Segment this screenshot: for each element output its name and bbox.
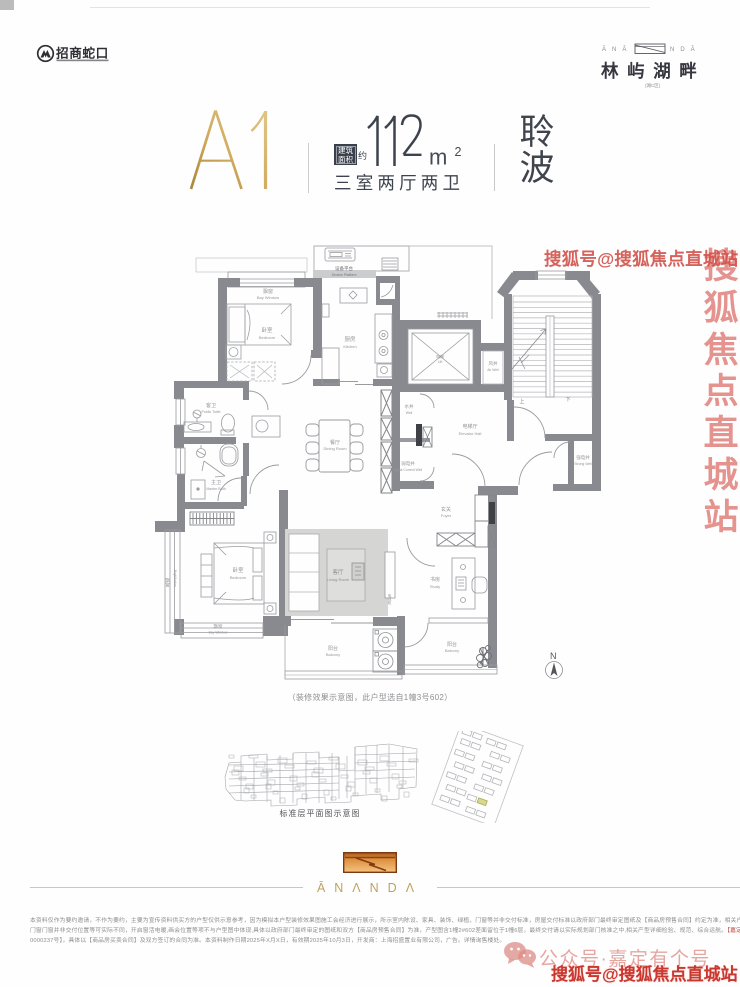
svg-text:Dining Room: Dining Room [323,446,347,451]
svg-text:卧室: 卧室 [232,566,244,574]
svg-text:Strong Well: Strong Well [574,462,592,466]
svg-text:电梯厅: 电梯厅 [462,423,477,430]
svg-text:厨房: 厨房 [344,335,356,343]
svg-text:设备平台: 设备平台 [335,265,353,272]
svg-text:Bedroom: Bedroom [230,575,247,580]
svg-text:N: N [550,651,557,661]
svg-text:强电井: 强电井 [576,454,590,461]
svg-text:Air Well: Air Well [487,368,499,372]
svg-text:Kitchen: Kitchen [343,344,356,349]
svg-text:Bedroom: Bedroom [259,335,276,340]
svg-text:Public Toilet: Public Toilet [201,410,220,414]
svg-text:Balcony: Balcony [445,648,459,653]
svg-text:飘窗: 飘窗 [263,288,273,295]
svg-text:Balcony: Balcony [326,652,340,657]
svg-text:弱电井: 弱电井 [401,460,415,467]
svg-text:Elevator Hall: Elevator Hall [459,431,482,436]
svg-text:风井: 风井 [489,360,498,367]
svg-text:Well: Well [406,411,413,415]
svg-text:餐厅: 餐厅 [330,439,340,446]
svg-text:BayWindow: BayWindow [173,570,177,588]
svg-text:卧室: 卧室 [261,326,273,334]
svg-text:Service Platform: Service Platform [332,273,357,277]
svg-text:Master Bath: Master Bath [206,487,225,491]
svg-text:Lift: Lift [438,360,443,364]
svg-text:飘窗: 飘窗 [165,578,171,589]
svg-text:书房: 书房 [430,576,440,583]
svg-text:客厅: 客厅 [332,568,344,576]
svg-text:Study: Study [430,584,440,589]
svg-text:电梯: 电梯 [436,353,444,359]
svg-text:水井: 水井 [405,403,414,410]
svg-text:Living Room: Living Room [327,577,350,582]
svg-text:玄关: 玄关 [441,506,451,513]
svg-text:Bay Window: Bay Window [257,295,279,300]
svg-text:Weak Current Well: Weak Current Well [394,468,423,472]
svg-text:阳台: 阳台 [447,641,457,648]
svg-text:飘窗: 飘窗 [214,623,223,630]
svg-text:阳台: 阳台 [328,645,338,652]
svg-text:主卫: 主卫 [211,479,221,486]
svg-text:电视柜: 电视柜 [387,593,392,605]
svg-text:Bay Window: Bay Window [209,631,228,635]
svg-text:客卫: 客卫 [206,402,216,409]
svg-text:下: 下 [565,397,570,403]
svg-text:Foyer: Foyer [441,513,452,518]
svg-text:上: 上 [519,398,524,405]
